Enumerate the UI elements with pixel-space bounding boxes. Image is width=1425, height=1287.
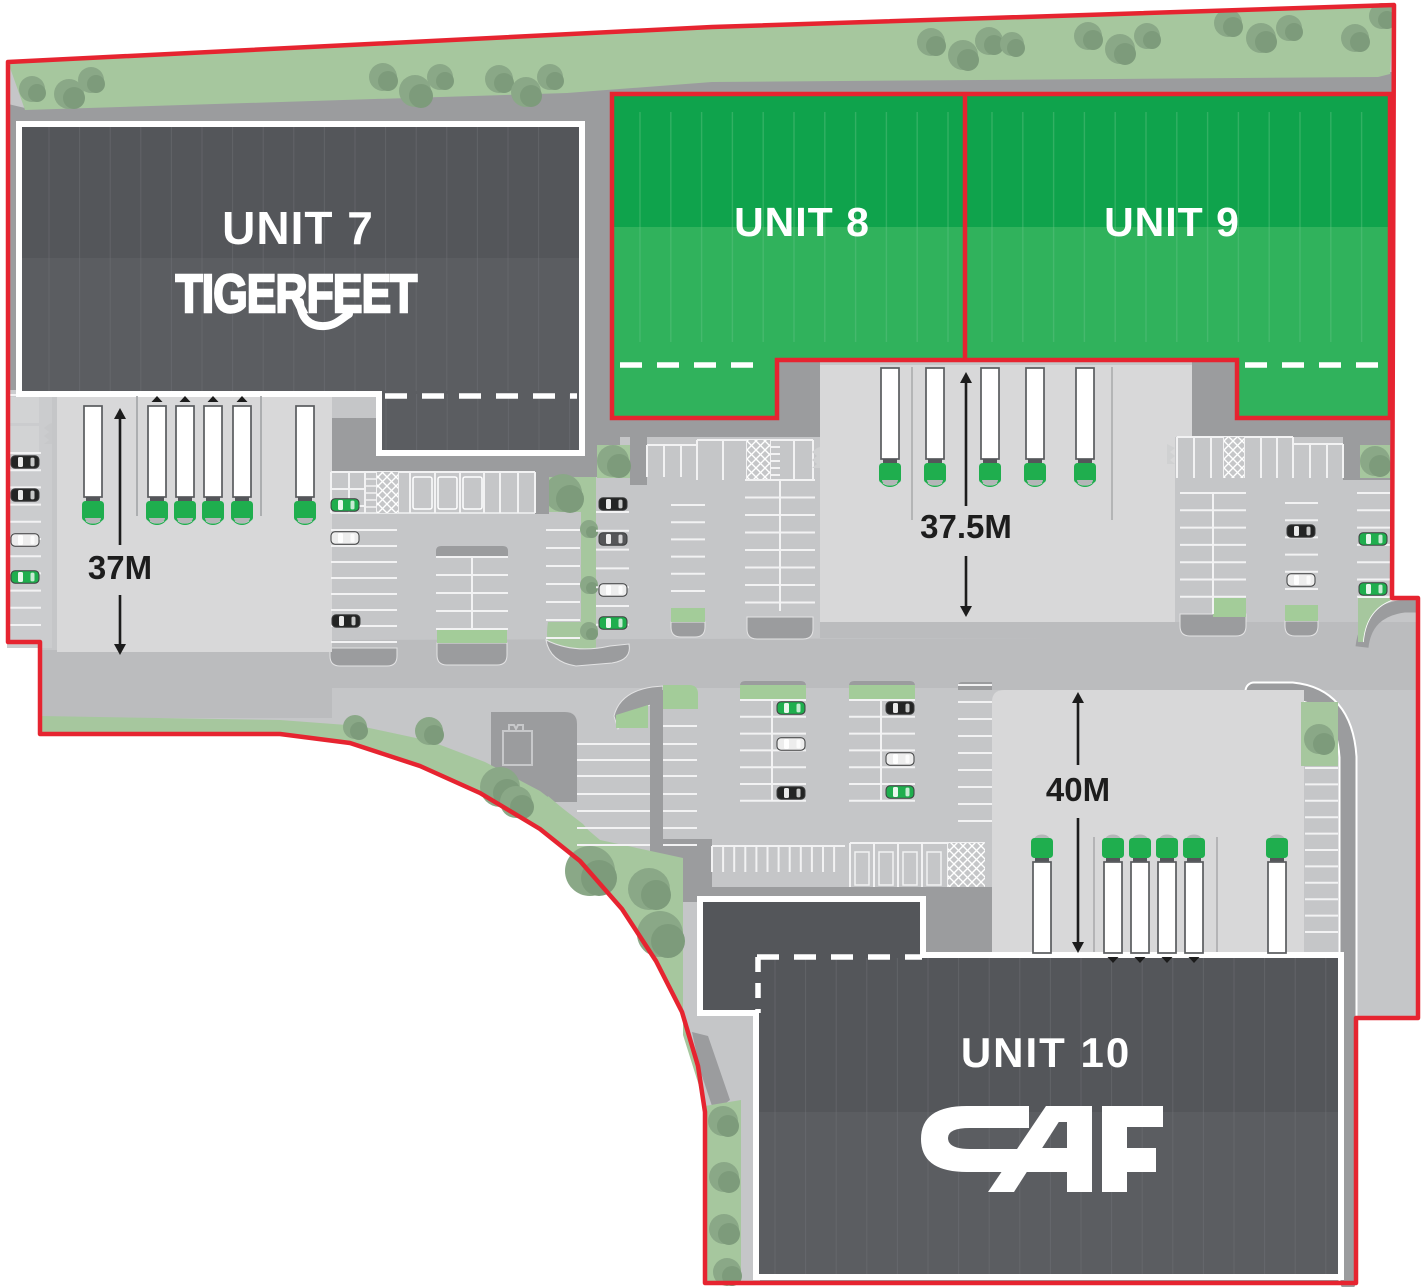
svg-text:40M: 40M (1046, 771, 1110, 808)
svg-text:UNIT 10: UNIT 10 (961, 1029, 1131, 1076)
svg-text:37M: 37M (88, 549, 152, 586)
svg-text:37.5M: 37.5M (920, 508, 1012, 545)
svg-text:UNIT 7: UNIT 7 (222, 202, 374, 254)
svg-text:TIGERFEET: TIGERFEET (176, 264, 418, 324)
svg-text:UNIT 9: UNIT 9 (1104, 199, 1240, 245)
svg-text:UNIT 8: UNIT 8 (734, 199, 870, 245)
